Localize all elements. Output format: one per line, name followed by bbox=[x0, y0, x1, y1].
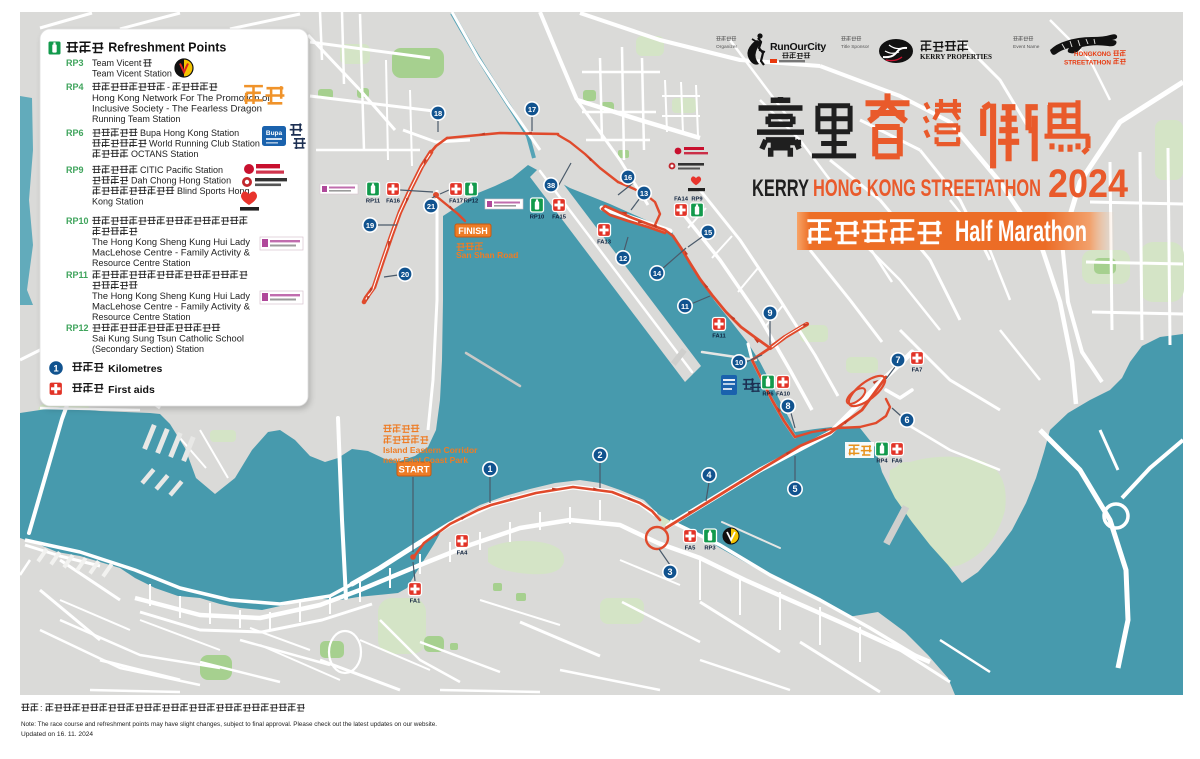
svg-text:HONGKONG: HONGKONG bbox=[1074, 51, 1111, 58]
svg-text:World Running Club Station: World Running Club Station bbox=[149, 139, 260, 149]
svg-text:5: 5 bbox=[792, 484, 797, 494]
svg-text:Blind Sports Hong: Blind Sports Hong bbox=[177, 186, 250, 196]
svg-text:10: 10 bbox=[735, 358, 743, 367]
svg-text:RP4: RP4 bbox=[66, 82, 84, 92]
svg-text:Updated on 16. 11. 2024: Updated on 16. 11. 2024 bbox=[21, 731, 93, 738]
svg-text:KERRY PROPERTIES: KERRY PROPERTIES bbox=[920, 53, 992, 61]
svg-text:FA5: FA5 bbox=[685, 546, 696, 552]
svg-text:21: 21 bbox=[427, 202, 435, 211]
svg-text:Sai Kung Sung Tsun Catholic Sc: Sai Kung Sung Tsun Catholic School bbox=[92, 334, 244, 344]
svg-text:First aids: First aids bbox=[108, 384, 155, 396]
svg-text:RP10: RP10 bbox=[530, 215, 545, 221]
svg-text:RP11: RP11 bbox=[66, 270, 88, 280]
svg-text:15: 15 bbox=[704, 228, 712, 237]
svg-text:Title Sponsor: Title Sponsor bbox=[841, 44, 869, 50]
svg-text:2: 2 bbox=[597, 450, 602, 460]
svg-text:9: 9 bbox=[767, 308, 772, 318]
svg-text:MacLehose Centre - Family Acti: MacLehose Centre - Family Activity & bbox=[92, 302, 250, 312]
svg-text:RP10: RP10 bbox=[66, 216, 89, 226]
svg-text:38: 38 bbox=[547, 181, 555, 190]
svg-text:-: - bbox=[167, 82, 170, 92]
svg-text:RP3: RP3 bbox=[704, 546, 716, 552]
svg-text:RP4: RP4 bbox=[876, 459, 888, 465]
svg-text:FA1: FA1 bbox=[410, 599, 421, 605]
svg-text:FA7: FA7 bbox=[912, 368, 923, 374]
svg-text:FA15: FA15 bbox=[552, 215, 567, 221]
svg-text:Team Vicent: Team Vicent bbox=[92, 58, 142, 68]
svg-text:RP12: RP12 bbox=[464, 199, 479, 205]
svg-text:RP6: RP6 bbox=[66, 128, 84, 138]
svg-text:OCTANS Station: OCTANS Station bbox=[131, 149, 198, 159]
svg-text:Hong Kong Network For The Prom: Hong Kong Network For The Promotion of bbox=[92, 93, 271, 103]
svg-text:RP6: RP6 bbox=[762, 392, 774, 398]
svg-text:7: 7 bbox=[895, 355, 900, 365]
svg-text:14: 14 bbox=[653, 269, 662, 278]
svg-text:20: 20 bbox=[401, 270, 409, 279]
svg-text:Kong Station: Kong Station bbox=[92, 197, 144, 207]
svg-text:San Shan Road: San Shan Road bbox=[456, 250, 518, 260]
svg-text:16: 16 bbox=[624, 173, 632, 182]
svg-text:Bupa Hong Kong Station: Bupa Hong Kong Station bbox=[140, 128, 239, 138]
svg-text:Organizer: Organizer bbox=[716, 44, 737, 50]
svg-text:Refreshment Points: Refreshment Points bbox=[108, 41, 226, 55]
svg-text:18: 18 bbox=[434, 109, 442, 118]
svg-text:2024: 2024 bbox=[1048, 162, 1129, 206]
svg-text:1: 1 bbox=[487, 464, 492, 474]
svg-text:Inclusive Society - The Fearle: Inclusive Society - The Fearless Dragon bbox=[92, 104, 262, 114]
svg-text:(Secondary Section) Station: (Secondary Section) Station bbox=[92, 344, 204, 354]
svg-text:near East Coast Park: near East Coast Park bbox=[383, 455, 468, 465]
svg-text:HONG KONG STREETATHON: HONG KONG STREETATHON bbox=[813, 175, 1041, 202]
svg-text:KERRY: KERRY bbox=[752, 175, 809, 202]
svg-text:FA14: FA14 bbox=[674, 197, 689, 203]
svg-text:Resource Centre Station: Resource Centre Station bbox=[92, 258, 191, 268]
svg-text:Kilometres: Kilometres bbox=[108, 363, 162, 375]
svg-text:MacLehose Centre - Family Acti: MacLehose Centre - Family Activity & bbox=[92, 248, 250, 258]
svg-text:6: 6 bbox=[904, 415, 909, 425]
svg-text:START: START bbox=[399, 465, 430, 476]
svg-text:RP12: RP12 bbox=[66, 323, 89, 333]
svg-text:RP3: RP3 bbox=[66, 58, 84, 68]
svg-text:3: 3 bbox=[667, 567, 672, 577]
svg-text:STREETATHON: STREETATHON bbox=[1064, 60, 1111, 67]
svg-text:FA16: FA16 bbox=[386, 199, 401, 205]
svg-text:Half Marathon: Half Marathon bbox=[955, 215, 1087, 248]
svg-text:FINISH: FINISH bbox=[458, 226, 488, 236]
svg-text:4: 4 bbox=[706, 470, 711, 480]
svg-text:8: 8 bbox=[785, 401, 790, 411]
svg-text:FA13: FA13 bbox=[597, 240, 612, 246]
svg-text:FA4: FA4 bbox=[457, 551, 468, 557]
svg-text:RP9: RP9 bbox=[66, 165, 84, 175]
svg-text:Event Name: Event Name bbox=[1013, 44, 1040, 50]
svg-text:FA10: FA10 bbox=[776, 392, 790, 398]
svg-text:11: 11 bbox=[681, 302, 689, 311]
svg-text:Note: The race course and refr: Note: The race course and refreshment po… bbox=[21, 721, 437, 728]
svg-text:13: 13 bbox=[640, 189, 648, 198]
svg-text:Resource Centre Station: Resource Centre Station bbox=[92, 312, 191, 322]
svg-text:17: 17 bbox=[528, 105, 536, 114]
svg-text::: : bbox=[40, 703, 42, 713]
svg-text:Running Team Station: Running Team Station bbox=[92, 114, 180, 124]
svg-text:FA17: FA17 bbox=[449, 199, 463, 205]
svg-text:The Hong Kong Sheng Kung Hui L: The Hong Kong Sheng Kung Hui Lady bbox=[92, 237, 251, 247]
svg-text:1: 1 bbox=[53, 364, 59, 375]
svg-text:Team Vicent Station: Team Vicent Station bbox=[92, 69, 172, 79]
svg-text:12: 12 bbox=[619, 254, 627, 263]
svg-text:19: 19 bbox=[366, 221, 374, 230]
svg-text:RP11: RP11 bbox=[366, 199, 381, 205]
svg-text:Dah Chong Hong Station: Dah Chong Hong Station bbox=[131, 176, 231, 186]
svg-text:FA11: FA11 bbox=[712, 334, 726, 340]
svg-text:The Hong Kong Sheng Kung Hui L: The Hong Kong Sheng Kung Hui Lady bbox=[92, 291, 251, 301]
svg-text:RP9: RP9 bbox=[691, 197, 703, 203]
svg-text:CITIC Pacific Station: CITIC Pacific Station bbox=[140, 165, 223, 175]
svg-text:Island Eastern Corridor: Island Eastern Corridor bbox=[383, 445, 478, 455]
svg-text:Bupa: Bupa bbox=[266, 130, 283, 137]
svg-text:RunOurCity: RunOurCity bbox=[770, 41, 826, 53]
svg-text:FA6: FA6 bbox=[892, 459, 903, 465]
